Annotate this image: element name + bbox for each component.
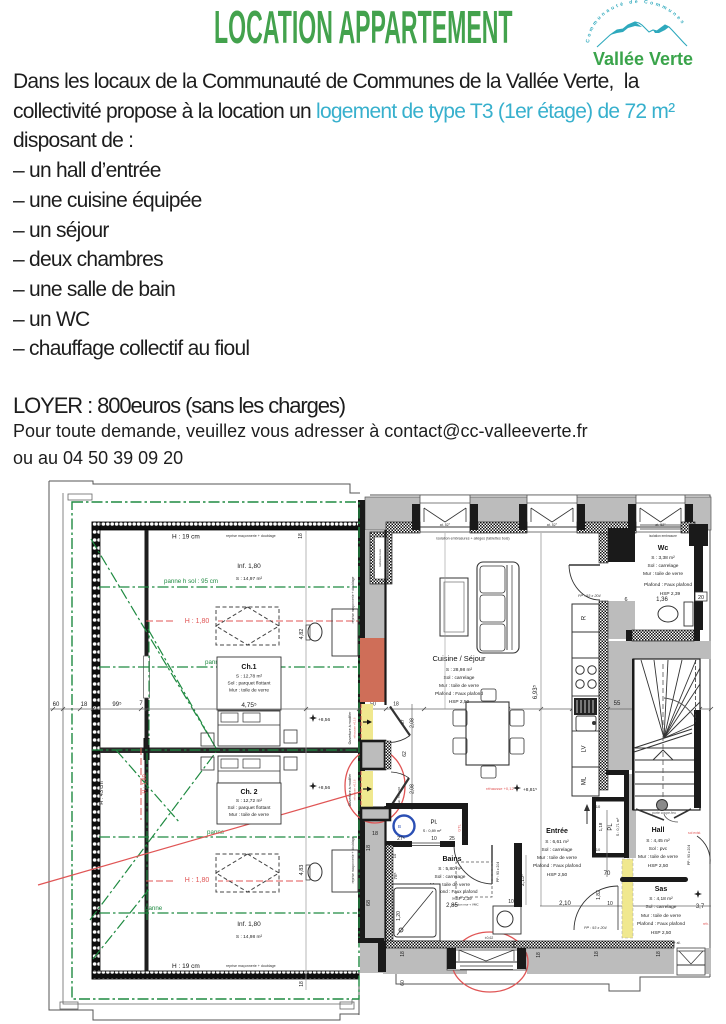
svg-text:Mur : toile de verre: Mur : toile de verre <box>643 571 683 577</box>
svg-text:Plafond : Faux plafond: Plafond : Faux plafond <box>533 863 581 869</box>
svg-text:18: 18 <box>656 951 662 957</box>
svg-text:Bains: Bains <box>442 856 461 863</box>
svg-text:Inf. 1,80: Inf. 1,80 <box>237 563 261 570</box>
svg-text:6,93⁵: 6,93⁵ <box>532 684 539 699</box>
svg-text:S : 12,72 m²: S : 12,72 m² <box>236 798 263 804</box>
svg-text:H : 1,80: H : 1,80 <box>185 618 210 625</box>
svg-text:Ch. 2: Ch. 2 <box>240 789 257 796</box>
svg-text:reprise maçonnerie + doublage: reprise maçonnerie + doublage <box>226 534 276 538</box>
svg-text:PP : 93 x 204: PP : 93 x 204 <box>578 594 601 598</box>
svg-text:réhausse +0,12: réhausse +0,12 <box>486 786 514 791</box>
svg-text:6: 6 <box>624 597 627 603</box>
svg-text:18: 18 <box>536 952 542 958</box>
svg-text:H : 19 cm: H : 19 cm <box>172 534 200 541</box>
svg-text:62: 62 <box>402 751 408 757</box>
svg-text:panne: panne <box>145 905 163 912</box>
svg-text:Mur : toile de verre: Mur : toile de verre <box>638 854 678 860</box>
svg-text:Entrée: Entrée <box>546 828 568 835</box>
svg-text:S : 14,97 m²: S : 14,97 m² <box>236 576 263 582</box>
svg-text:18: 18 <box>400 951 406 957</box>
svg-text:Mur : toile de verre: Mur : toile de verre <box>229 812 269 818</box>
svg-text:sol exist.: sol exist. <box>688 831 701 835</box>
svg-text:Cuisine / Séjour: Cuisine / Séjour <box>433 654 486 663</box>
svg-text:PL: PL <box>608 823 614 831</box>
svg-text:Ouverture à modifier: Ouverture à modifier <box>348 773 352 807</box>
svg-text:+8,56: +8,56 <box>318 717 330 723</box>
svg-text:at. 52°: at. 52° <box>547 523 558 527</box>
svg-text:20: 20 <box>698 595 704 601</box>
svg-text:4,82: 4,82 <box>299 629 305 640</box>
svg-text:H : 19 cm: H : 19 cm <box>172 963 200 970</box>
svg-text:Pl.: Pl. <box>430 820 437 826</box>
svg-text:H : 1,80: H : 1,80 <box>142 774 148 793</box>
svg-text:Sol : carrelage: Sol : carrelage <box>648 563 679 569</box>
svg-text:Inf. 1,80: Inf. 1,80 <box>237 921 261 928</box>
svg-text:PP : 93 x 204: PP : 93 x 204 <box>496 862 500 882</box>
svg-text:B: B <box>398 824 401 829</box>
svg-text:Ch.1: Ch.1 <box>241 664 256 671</box>
svg-text:18: 18 <box>372 831 378 837</box>
svg-text:60: 60 <box>53 702 60 708</box>
svg-text:18: 18 <box>594 951 600 957</box>
svg-text:R: R <box>582 615 588 620</box>
svg-text:S : 3,38 m²: S : 3,38 m² <box>651 555 675 561</box>
svg-text:isolation embrasure: isolation embrasure <box>649 534 677 538</box>
svg-text:55: 55 <box>614 701 621 707</box>
svg-text:18: 18 <box>81 702 88 708</box>
svg-text:7: 7 <box>139 701 143 707</box>
svg-text:réhausse +0,16: réhausse +0,16 <box>353 717 357 738</box>
svg-text:Mur : toile de verre: Mur : toile de verre <box>641 913 681 919</box>
svg-text:Sol : parquet flottant: Sol : parquet flottant <box>228 681 272 687</box>
svg-text:Mur : toile de verre: Mur : toile de verre <box>537 855 577 861</box>
svg-text:Sol : carrelage: Sol : carrelage <box>646 904 677 910</box>
svg-text:87: 87 <box>400 719 405 725</box>
svg-text:27⁵: 27⁵ <box>397 836 405 842</box>
svg-text:S : 0,71 m²: S : 0,71 m² <box>616 817 620 836</box>
svg-text:18: 18 <box>298 533 304 539</box>
svg-text:HSP 2,50: HSP 2,50 <box>651 930 672 936</box>
svg-text:+8,81⁵: +8,81⁵ <box>523 787 537 793</box>
svg-text:Plafond : Faux plafond: Plafond : Faux plafond <box>637 921 685 927</box>
svg-text:HSP 2,50: HSP 2,50 <box>547 872 568 878</box>
svg-text:S : 0,89 m²: S : 0,89 m² <box>423 829 442 833</box>
svg-text:reprise maçonnerie + doublage: reprise maçonnerie + doublage <box>351 836 355 883</box>
svg-text:1,18: 1,18 <box>598 822 603 831</box>
svg-text:Sol : pvc: Sol : pvc <box>649 846 668 852</box>
svg-text:PP : 93 x 204: PP : 93 x 204 <box>584 926 607 930</box>
svg-text:Vallée Verte: Vallée Verte <box>593 49 693 69</box>
svg-text:4,83: 4,83 <box>299 865 305 876</box>
svg-text:Sol : carrelage: Sol : carrelage <box>444 675 475 681</box>
svg-text:Wc: Wc <box>658 545 669 552</box>
svg-text:S : 12,78 m²: S : 12,78 m² <box>236 674 263 680</box>
svg-text:ML: ML <box>582 776 588 785</box>
svg-text:10: 10 <box>596 804 601 809</box>
svg-text:10: 10 <box>431 836 437 842</box>
svg-text:Plafond : Faux plafond: Plafond : Faux plafond <box>644 582 692 588</box>
svg-text:HSP 2,50: HSP 2,50 <box>449 699 470 705</box>
svg-text:S : 6,61 m²: S : 6,61 m² <box>545 839 569 845</box>
svg-text:réhausse +0,16: réhausse +0,16 <box>353 779 357 800</box>
svg-text:2,85: 2,85 <box>446 903 458 909</box>
svg-text:±0,62: ±0,62 <box>485 936 494 940</box>
svg-text:GTL: GTL <box>458 824 462 831</box>
svg-text:Sol : carrelage: Sol : carrelage <box>435 874 466 880</box>
svg-text:Sol : carrelage: Sol : carrelage <box>542 847 573 853</box>
svg-text:réh.: réh. <box>703 922 709 926</box>
svg-text:Sas: Sas <box>655 886 668 893</box>
svg-text:H : 1,80: H : 1,80 <box>185 877 210 884</box>
svg-text:Ouverture à modifier: Ouverture à modifier <box>348 711 352 745</box>
svg-text:+8,56: +8,56 <box>318 785 330 791</box>
svg-text:HSP 2,50: HSP 2,50 <box>648 863 669 869</box>
svg-text:10: 10 <box>596 847 601 852</box>
svg-text:4,75⁵: 4,75⁵ <box>241 702 257 709</box>
svg-text:S : 4,18 m²: S : 4,18 m² <box>649 896 673 902</box>
svg-text:Plafond : Faux plafond: Plafond : Faux plafond <box>435 691 483 697</box>
svg-text:reprise maçonnerie + doublage: reprise maçonnerie + doublage <box>351 576 355 623</box>
svg-text:HSP 2,39: HSP 2,39 <box>452 896 472 901</box>
svg-text:25: 25 <box>449 836 455 842</box>
svg-text:7: 7 <box>463 836 466 842</box>
svg-text:1,20: 1,20 <box>396 911 402 921</box>
svg-text:2,08: 2,08 <box>410 718 416 728</box>
svg-text:at. 52°: at. 52° <box>440 523 451 527</box>
svg-text:S : 28,98 m²: S : 28,98 m² <box>446 667 473 673</box>
svg-text:68: 68 <box>366 900 372 906</box>
svg-text:78⁵: 78⁵ <box>393 872 398 879</box>
svg-text:Hall: Hall <box>652 827 665 834</box>
svg-text:2,08: 2,08 <box>410 784 416 794</box>
svg-text:PP : 93 x 204: PP : 93 x 204 <box>687 845 691 865</box>
svg-text:60: 60 <box>400 980 406 986</box>
svg-text:H : 43 cm: H : 43 cm <box>99 781 105 805</box>
svg-text:1,36: 1,36 <box>656 597 668 603</box>
svg-text:18: 18 <box>393 702 399 708</box>
svg-text:Sol : parquet flottant: Sol : parquet flottant <box>228 805 272 811</box>
svg-text:S : 4,45 m²: S : 4,45 m² <box>646 838 670 844</box>
svg-text:tablettes bois: tablettes bois <box>378 549 382 567</box>
svg-text:isolation embrasures + allèges: isolation embrasures + allèges (tablette… <box>436 537 509 541</box>
svg-text:99⁵: 99⁵ <box>112 701 122 708</box>
svg-text:Mur : toile de verre: Mur : toile de verre <box>229 688 269 694</box>
svg-text:3,7: 3,7 <box>696 904 705 910</box>
svg-text:porte coupe-feu: porte coupe-feu <box>652 811 676 815</box>
svg-text:S : 5,80 m²: S : 5,80 m² <box>438 866 462 872</box>
svg-text:reprise maçonnerie + doublage: reprise maçonnerie + doublage <box>226 964 276 968</box>
svg-text:S : 14,98 m²: S : 14,98 m² <box>236 934 263 940</box>
svg-text:alt. 78 x 204: alt. 78 x 204 <box>397 787 401 804</box>
svg-text:HSP 2,39: HSP 2,39 <box>660 591 681 597</box>
svg-text:18: 18 <box>299 981 305 987</box>
svg-text:panne h sol : 95 cm: panne h sol : 95 cm <box>164 578 218 585</box>
svg-text:LV: LV <box>582 746 588 753</box>
svg-text:10: 10 <box>508 899 514 905</box>
svg-text:18: 18 <box>366 845 372 851</box>
